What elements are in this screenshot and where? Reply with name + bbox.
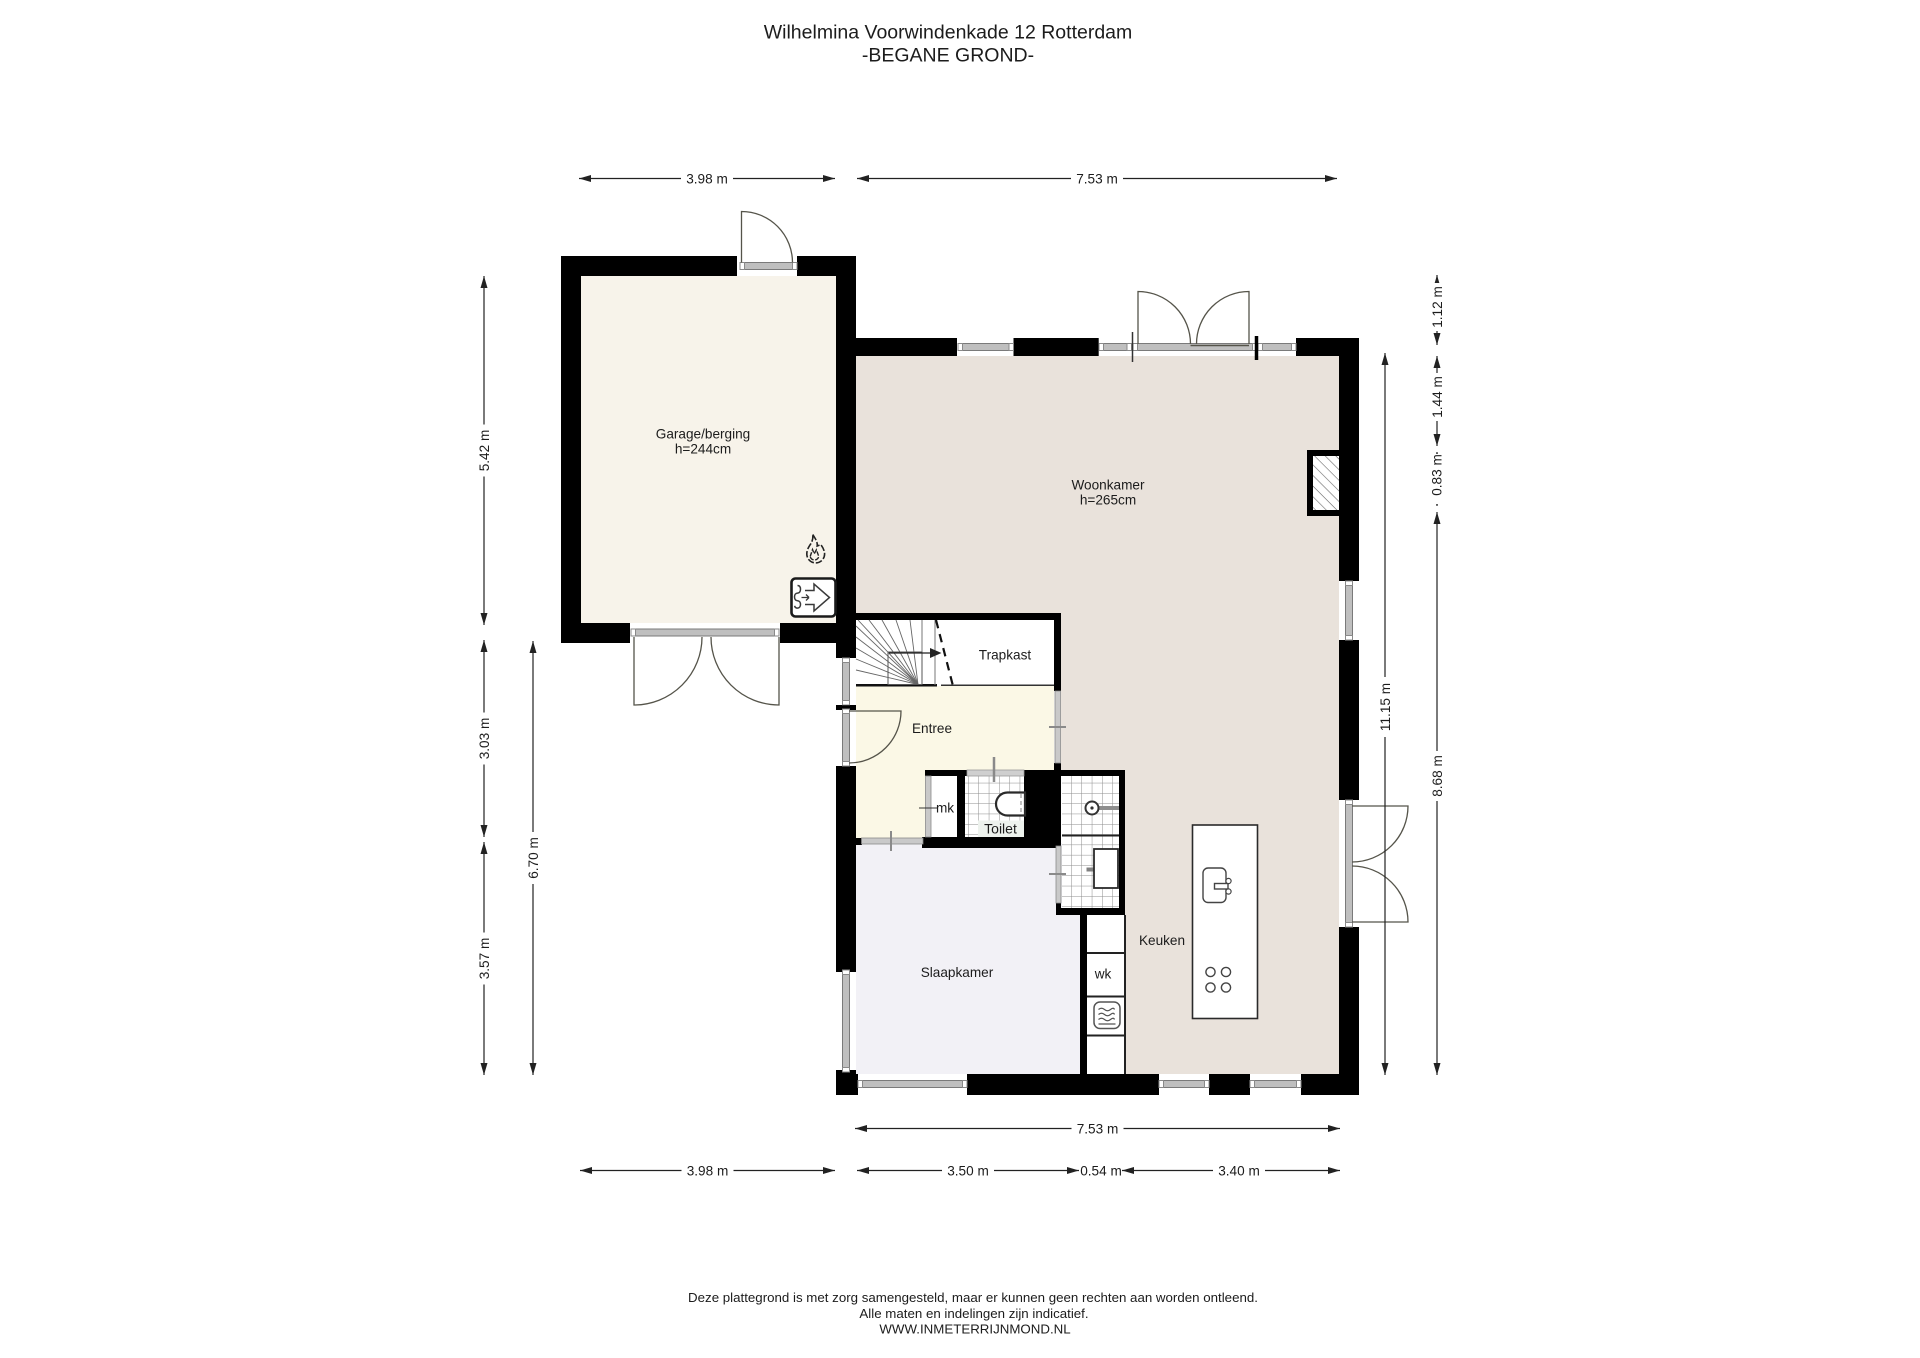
svg-text:mk: mk: [936, 801, 954, 816]
svg-text:Toilet: Toilet: [984, 821, 1017, 837]
svg-text:11.15 m: 11.15 m: [1378, 683, 1393, 731]
svg-text:0.54 m: 0.54 m: [1080, 1164, 1122, 1179]
svg-text:6.70 m: 6.70 m: [526, 837, 541, 879]
svg-text:1.12 m: 1.12 m: [1430, 286, 1445, 328]
svg-text:h=244cm: h=244cm: [675, 442, 731, 457]
svg-text:8.68 m: 8.68 m: [1430, 755, 1445, 797]
svg-text:Trapkast: Trapkast: [979, 648, 1032, 663]
svg-text:-BEGANE GROND-: -BEGANE GROND-: [862, 45, 1034, 67]
svg-text:WWW.INMETERRIJNMOND.NL: WWW.INMETERRIJNMOND.NL: [879, 1322, 1070, 1337]
svg-text:3.40 m: 3.40 m: [1218, 1164, 1260, 1179]
svg-text:7.53 m: 7.53 m: [1076, 172, 1118, 187]
svg-text:3.98 m: 3.98 m: [687, 1164, 729, 1179]
svg-text:Slaapkamer: Slaapkamer: [921, 965, 994, 980]
svg-text:3.50 m: 3.50 m: [947, 1164, 989, 1179]
svg-text:1.44 m: 1.44 m: [1430, 376, 1445, 418]
svg-text:Keuken: Keuken: [1139, 933, 1185, 948]
svg-text:Entree: Entree: [912, 721, 952, 736]
svg-text:wk: wk: [1094, 967, 1112, 982]
svg-text:Woonkamer: Woonkamer: [1071, 478, 1145, 493]
svg-text:3.98 m: 3.98 m: [686, 172, 728, 187]
svg-text:3.57 m: 3.57 m: [477, 938, 492, 980]
svg-text:Wilhelmina Voorwindenkade 12 R: Wilhelmina Voorwindenkade 12 Rotterdam: [764, 22, 1133, 44]
svg-text:Garage/berging: Garage/berging: [656, 427, 750, 442]
svg-text:Alle maten en indelingen zijn: Alle maten en indelingen zijn indicatief…: [859, 1306, 1088, 1321]
svg-text:h=265cm: h=265cm: [1080, 493, 1136, 508]
svg-text:3.03 m: 3.03 m: [477, 718, 492, 760]
svg-text:Deze plattegrond is met zorg s: Deze plattegrond is met zorg samengestel…: [688, 1290, 1258, 1305]
svg-text:5.42 m: 5.42 m: [477, 430, 492, 472]
svg-text:7.53 m: 7.53 m: [1077, 1122, 1119, 1137]
svg-text:0.83 m: 0.83 m: [1430, 454, 1445, 496]
